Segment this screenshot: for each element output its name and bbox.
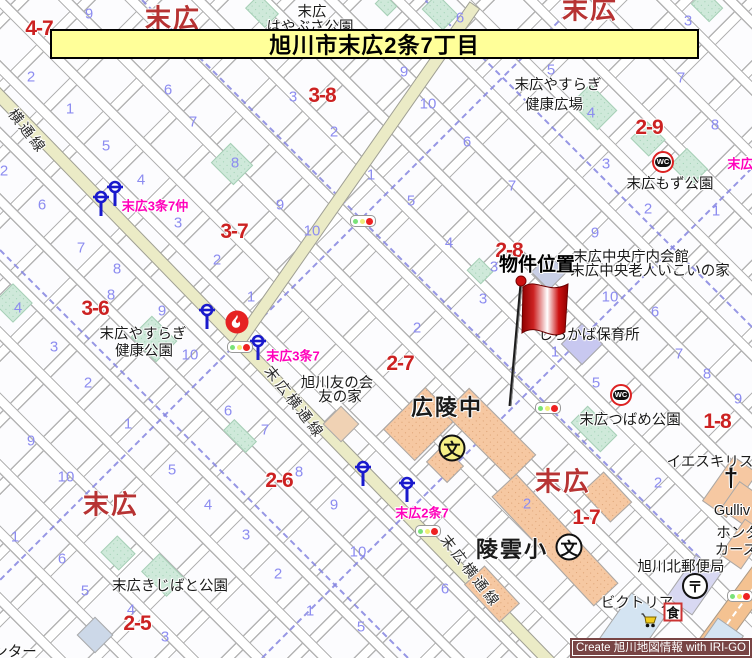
lot-number: 2 [644,201,652,218]
lot-number: 2 [84,375,92,392]
lot-number: 7 [508,178,516,195]
lot-number: 3 [479,291,487,308]
lot-number: 10 [304,223,321,240]
property-location-label: 物件位置 [499,250,575,277]
lot-number: 3 [174,215,182,232]
block-number-label: 2-6 [265,469,292,493]
lot-number: 9 [158,303,166,320]
lot-number: 9 [276,197,284,214]
park-area [691,0,724,22]
lot-number: 4 [14,300,22,317]
lot-number: 3 [602,156,610,173]
block-number-label: 4-7 [25,17,52,41]
traffic-light-icon [350,215,376,227]
lot-number: 1 [247,289,255,306]
lot-number: 6 [164,82,172,99]
lot-number: 2 [413,320,421,337]
lot-number: 6 [224,403,232,420]
bus-stop-icon [199,303,216,335]
place-label: ビクトリア [601,592,674,613]
lot-number: 10 [602,289,619,306]
elementary-school-icon: 文 [556,534,583,561]
lot-number: 6 [456,10,464,27]
block-number-label: 2-7 [386,352,413,376]
lot-number: 8 [295,464,303,481]
school-name-label: 広陵中 [411,390,483,422]
lot-number: 5 [357,619,365,636]
lot-number: 7 [77,240,85,257]
lot-number: 8 [711,117,719,134]
lot-number: 1 [367,167,375,184]
toilet-icon: WC [610,384,632,406]
shopping-cart-icon [641,613,659,633]
school-name-label: 陵雲小 [476,532,548,564]
block-number-label: 1-8 [703,410,730,434]
junior-high-school-icon: 文 [439,435,466,462]
lot-number: 9 [591,225,599,242]
traffic-light-icon [227,341,253,353]
building [77,617,114,654]
lot-number: 3 [161,629,169,646]
place-label: ンター [0,641,37,658]
lot-number: 2 [330,124,338,141]
lot-number: 2 [523,496,531,513]
toilet-icon: WC [652,151,674,173]
bus-stop-label: 末広2 [727,154,752,173]
lot-number: 8 [113,261,121,278]
lot-number: 4 [204,497,212,514]
place-label: 末広もず公園 [627,173,714,194]
place-label: 健康広場 [525,94,583,115]
lot-number: 4 [137,172,145,189]
lot-number: 1 [124,416,132,433]
traffic-light-icon [727,590,752,602]
lot-number: 1 [11,529,19,546]
lot-number: 4 [587,105,595,122]
lot-number: 9 [27,433,35,450]
place-label: 健康公園 [115,340,173,361]
place-label: 旭川北郵便局 [638,556,725,577]
lot-number: 3 [289,89,297,106]
place-label: 末広きじばと公園 [112,575,228,596]
post-office-icon: 〒 [682,573,708,599]
district-label: 末広 [535,462,591,499]
lot-number: 9 [85,6,93,23]
lot-number: 9 [400,64,408,81]
park-area [100,535,135,570]
place-label: 末広中央老人いこいの家 [570,260,730,281]
lot-number: 9 [734,391,742,408]
lot-number: 5 [81,583,89,600]
block-number-label: 1-7 [572,506,599,530]
park-area [223,419,257,453]
lot-number: 7 [677,70,685,87]
lot-number: 6 [58,551,66,568]
credit-bar: Create 旭川地図情報 with IRI-GO [570,638,752,658]
district-label: 末広 [562,0,618,27]
lot-number: 8 [231,155,239,172]
lot-number: 6 [38,197,46,214]
lot-number: 3 [684,13,692,30]
title-banner: 旭川市末広2条7丁目 [50,29,699,59]
credit-text: Create 旭川地図情報 with IRI-GO [572,640,750,656]
lot-number: 6 [441,581,449,598]
lot-number: 3 [50,339,58,356]
lot-number: 1 [712,203,720,220]
lot-number: 5 [407,193,415,210]
lot-number: 6 [463,134,471,151]
block-number-label: 2-9 [635,116,662,140]
place-label: 末広やすらぎ [515,74,602,95]
church-cross-icon: † [724,463,738,494]
lot-number: 10 [182,347,199,364]
place-label: イエスキリス [667,451,752,472]
street-name-label: 横通線 [4,104,53,158]
place-label: 末広つばめ公園 [579,409,681,430]
map-generated-layer: 9261754268932163910576483752131027884913… [0,0,752,658]
lot-number: 5 [102,138,110,155]
map-canvas[interactable]: 9261754268932163910576483752131027884913… [0,0,752,658]
lot-number: 9 [330,497,338,514]
lot-number: 10 [420,96,437,113]
lot-number: 10 [58,469,75,486]
lot-number: 3 [242,527,250,544]
traffic-light-icon [415,525,441,537]
bus-stop-label: 末広3条7 [266,346,319,365]
lot-number: 2 [274,566,282,583]
lot-number: 7 [675,346,683,363]
bus-stop-label: 末広3条7仲 [122,196,188,215]
block-number-label: 2-5 [123,612,150,636]
lot-number: 6 [651,304,659,321]
lot-number: 5 [592,375,600,392]
bus-stop-icon [107,180,124,212]
lot-number: 2 [0,163,8,180]
lot-number: 4 [445,235,453,252]
bus-stop-icon [355,460,372,492]
block-number-label: 3-8 [308,84,335,108]
bus-stop-icon [399,476,416,508]
lot-number: 1 [66,101,74,118]
lot-number: 2 [654,475,662,492]
page-title: 旭川市末広2条7丁目 [269,28,479,60]
property-flag-icon [498,270,578,410]
lot-number: 1 [306,603,314,620]
park-area [375,0,398,16]
lot-number: 8 [703,366,711,383]
lot-number: 7 [189,114,197,131]
lot-number: 5 [168,462,176,479]
district-label: 末広 [83,485,139,522]
lot-number: 10 [350,544,367,561]
lot-number: 2 [213,252,221,269]
block-number-label: 3-7 [220,220,247,244]
block-number-label: 3-6 [81,297,108,321]
lot-number: 2 [27,69,35,86]
place-label: 友の家 [318,386,362,407]
place-label: Gulliv [714,503,750,519]
fire-station-icon [226,311,249,334]
lot-number: 7 [261,422,269,439]
restaurant-icon: 食 [664,603,683,622]
